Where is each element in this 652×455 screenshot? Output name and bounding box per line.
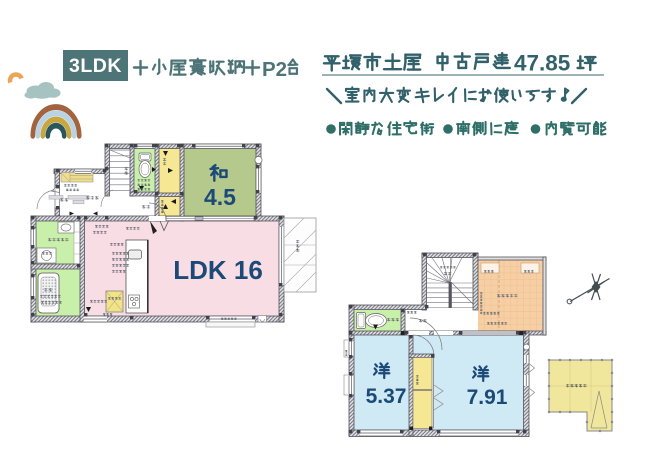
svg-text:4.5: 4.5 [204,184,236,210]
svg-text:47.85: 47.85 [514,51,570,76]
svg-text:7.91: 7.91 [467,386,508,409]
svg-text:LDK 16: LDK 16 [173,255,263,285]
svg-text:5.37: 5.37 [366,385,407,408]
svg-text:P2: P2 [262,58,287,81]
svg-text:3LDK: 3LDK [69,55,122,77]
